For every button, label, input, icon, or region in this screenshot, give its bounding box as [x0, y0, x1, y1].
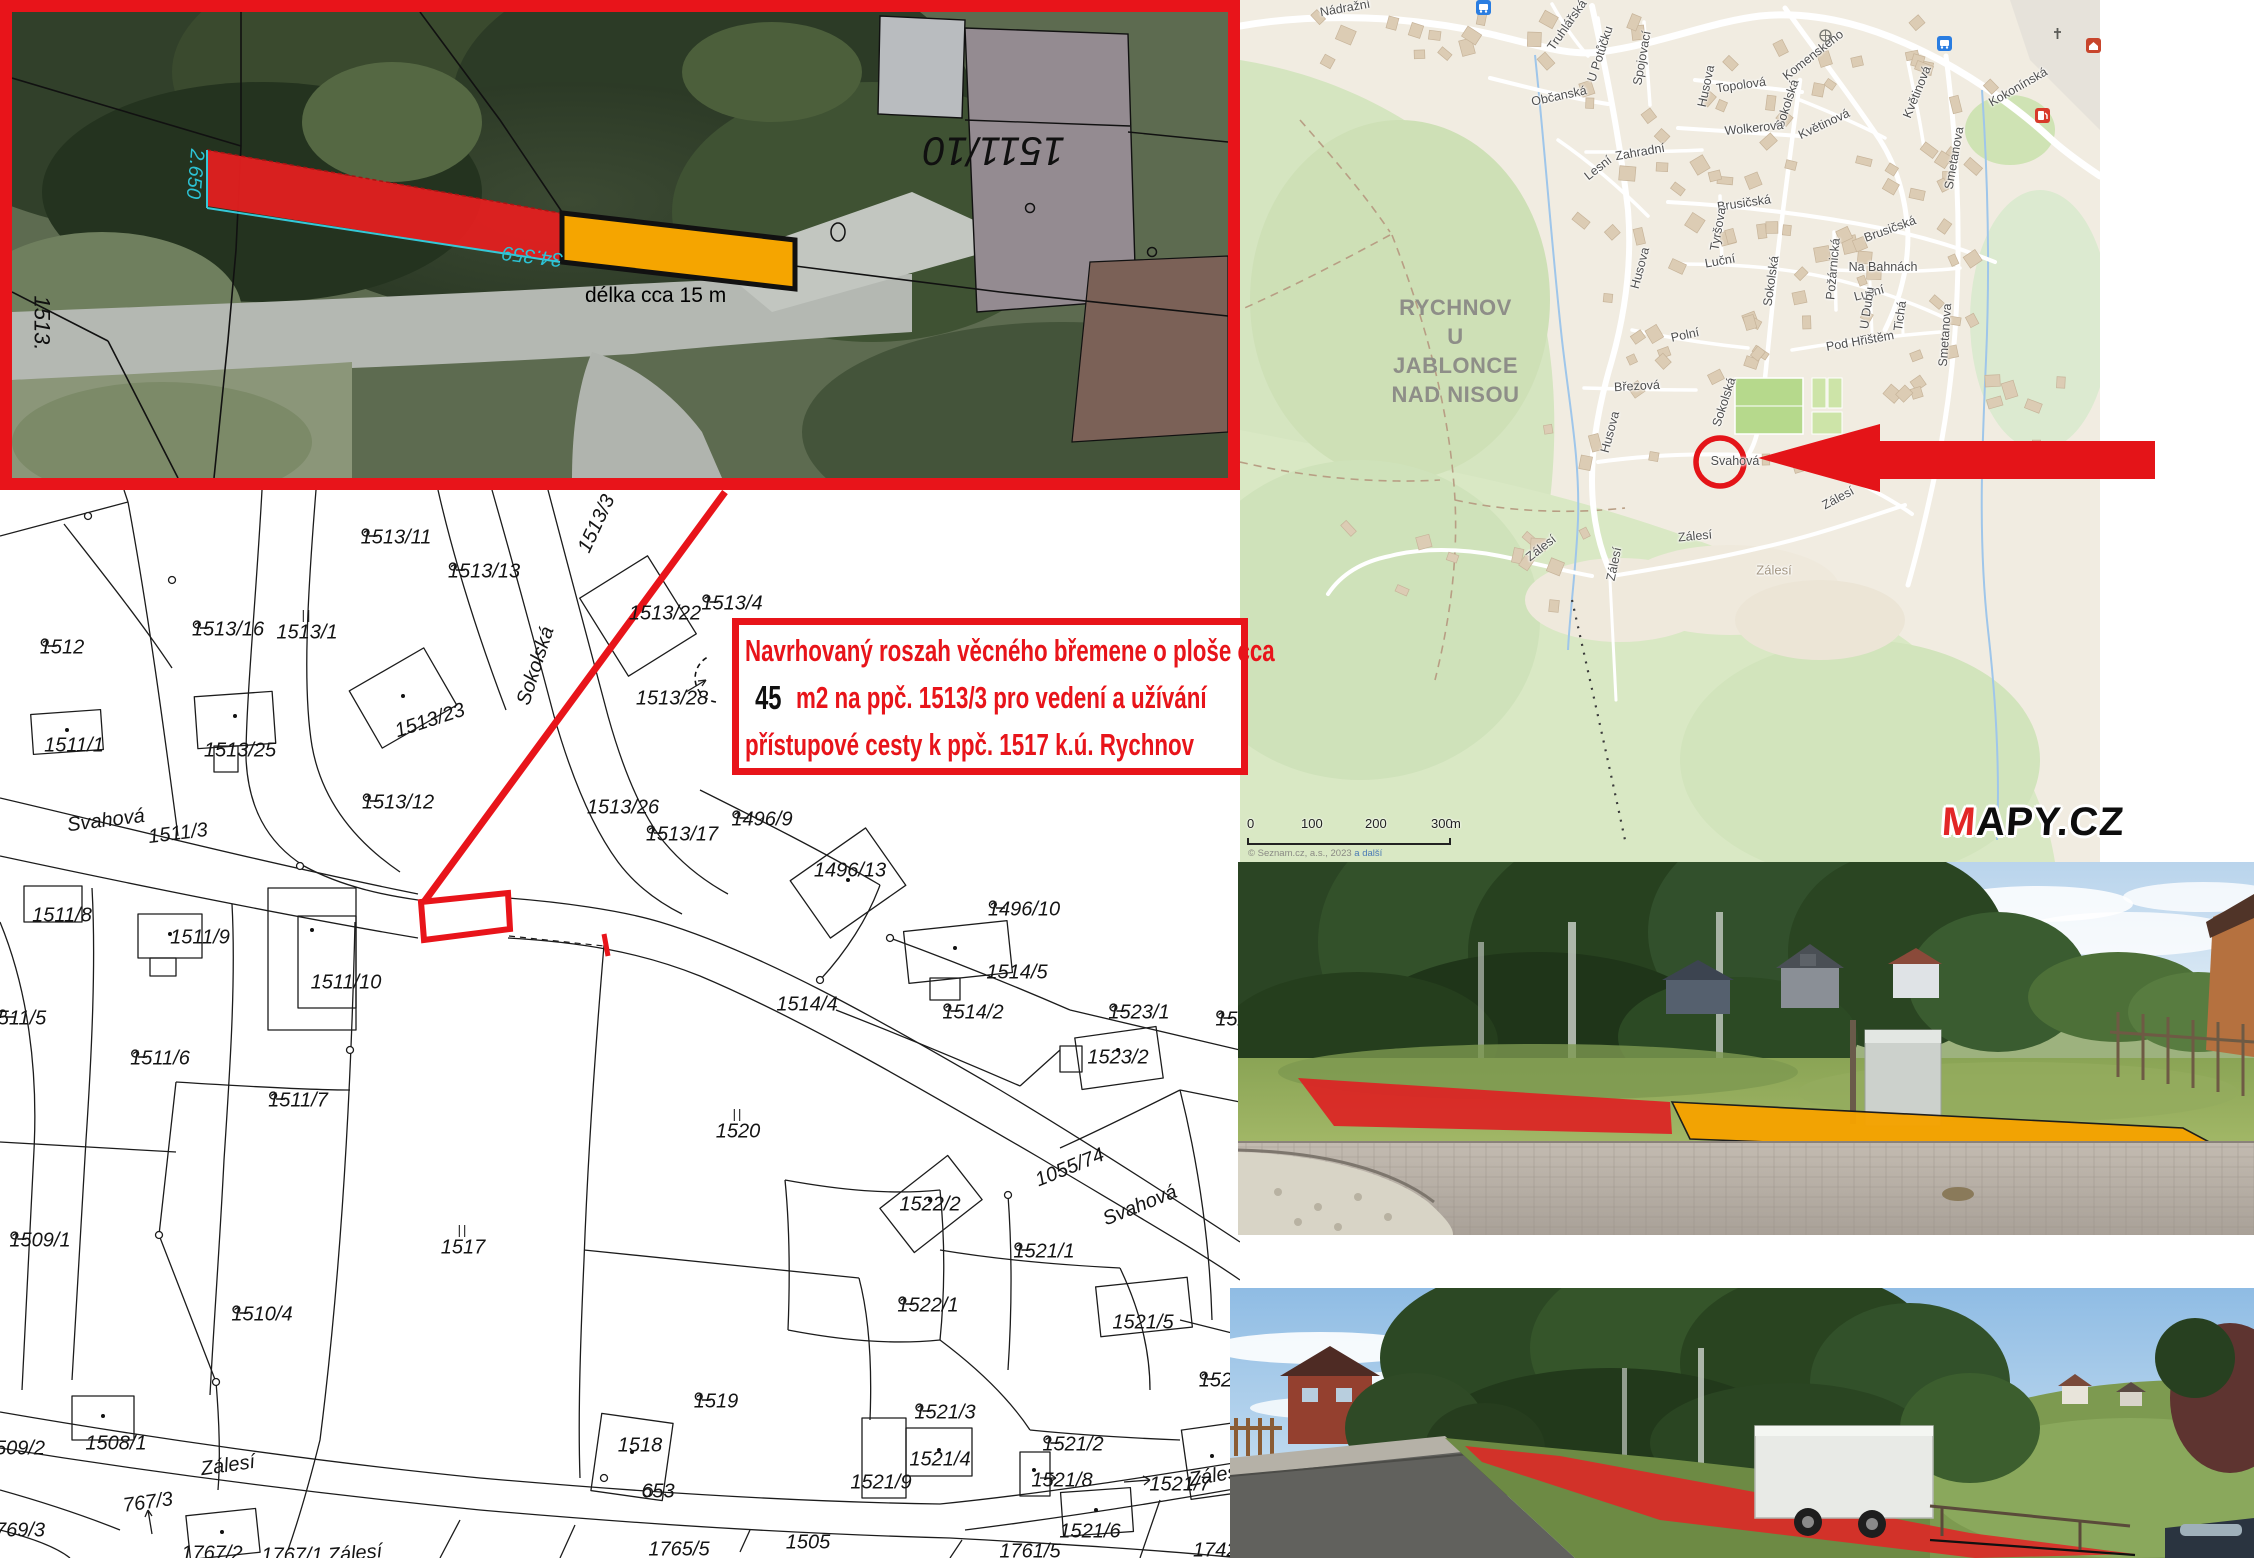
parcel-label: 1513/13 — [448, 562, 520, 583]
parcel-label: 1514/4 — [776, 995, 837, 1016]
mapy-cz-logo[interactable]: MAPY.CZ — [1940, 800, 2126, 845]
parcel-label: 509/2 — [0, 1439, 45, 1460]
parcel-label: 653 — [641, 1482, 674, 1503]
city-label: RYCHNOV U JABLONCE NAD NISOU — [1388, 293, 1523, 409]
parcel-label: 1508/1 — [85, 1434, 146, 1455]
parcel-label: 1767/2 — [181, 1544, 242, 1558]
parcel-label: 1522/2 — [899, 1195, 960, 1216]
church-icon — [2050, 26, 2065, 41]
parcel-label: 1511/7 — [268, 1091, 328, 1112]
annotation-line1: Navrhovaný roszah věcného břemene o ploš… — [745, 633, 1275, 669]
length-note: délka cca 15 m — [585, 284, 726, 308]
parcel-label: 1521/6 — [1059, 1522, 1120, 1543]
parcel-label: 1521/3 — [914, 1403, 975, 1424]
parcel-label: 152 — [1215, 1010, 1240, 1031]
parcel-label: 1514/5 — [986, 963, 1047, 984]
parcel-label: 1523/1 — [1108, 1003, 1169, 1024]
map-scale-bar: 0 100 200 300 m — [1245, 816, 1460, 852]
parcel-label: 1513/26 — [587, 798, 659, 819]
bus-stop-icon — [1476, 0, 1491, 15]
parcel-label: 1509/1 — [9, 1231, 70, 1252]
parcel-label: 1767/1 — [261, 1546, 322, 1558]
parcel-label: ||1517 — [441, 1224, 486, 1259]
photo-site-west — [1230, 1288, 2254, 1558]
parcel-label: 1521/9 — [850, 1473, 911, 1494]
parcel-label: 1513/11 — [361, 528, 432, 549]
overview-map[interactable]: RYCHNOV U JABLONCE NAD NISOU NádražníTru… — [1240, 0, 2254, 862]
parcel-label: 1521/2 — [1042, 1435, 1103, 1456]
parcel-label: 1521/5 — [1112, 1313, 1173, 1334]
parcel-label: 1513/28 — [636, 689, 708, 710]
parcel-label: 1513/17 — [646, 825, 718, 846]
street-label: Svahová — [1711, 454, 1760, 468]
parcel-label: 1511/10 — [311, 973, 382, 994]
parcel-label: 1514/2 — [942, 1003, 1003, 1024]
parcel-label: 1521/1 — [1013, 1242, 1074, 1263]
fuel-station-icon — [2035, 108, 2050, 123]
parcel-label: ||1520 — [716, 1108, 761, 1143]
parcel-label: 1513/22 — [629, 604, 701, 625]
aerial-edge-parcel-label: 1513. — [29, 295, 55, 350]
parcel-label: 1522/1 — [897, 1296, 958, 1317]
parcel-label: 1521/4 — [909, 1450, 970, 1471]
parcel-label: 1511/9 — [170, 928, 230, 949]
map-attribution: © Seznam.cz, a.s., 2023 a další — [1248, 848, 1382, 859]
aerial-photo-graphics — [12, 12, 1228, 478]
street-label: Na Bahnách — [1849, 260, 1918, 274]
annotation-line2: m2 na ppč. 1513/3 pro vedení a užívání — [796, 680, 1207, 716]
annotation-area-value: 45 — [745, 679, 782, 717]
attribution-text: © Seznam.cz, a.s., 2023 — [1248, 848, 1354, 859]
landmark-icon — [2086, 38, 2101, 53]
easement-outline — [421, 893, 510, 940]
parcel-label: 1513/25 — [204, 741, 276, 762]
parcel-label: 1761/5 — [999, 1542, 1060, 1558]
aerial-parcel-label: 1511/10 — [923, 128, 1065, 173]
parcel-label: 1511/1 — [44, 736, 104, 757]
parcel-label: ||1513/1 — [276, 609, 337, 644]
parcel-label: 1496/9 — [731, 810, 792, 831]
annotation-line3: přístupové cesty k ppč. 1517 k.ú. Rychno… — [745, 727, 1194, 763]
bus-stop-icon — [1937, 36, 1952, 51]
sports-hall-icon — [1818, 28, 1833, 43]
parcel-label: 1496/10 — [988, 900, 1060, 921]
parcel-label: 1511/8 — [32, 906, 92, 927]
street-label: Zálesí — [1677, 528, 1712, 545]
parcel-label: 1512 — [40, 638, 85, 659]
parcel-label: Zálesí — [327, 1541, 383, 1558]
parcel-label: 1505 — [786, 1533, 831, 1554]
parcel-label: 1513/4 — [701, 594, 762, 615]
parcel-label: 1521/8 — [1031, 1471, 1092, 1492]
parcel-label: 511/5 — [0, 1009, 46, 1030]
parcel-label: 1496/13 — [814, 861, 886, 882]
annotation-box: Navrhovaný roszah věcného břemene o ploš… — [732, 618, 1248, 775]
parcel-label: 1523/2 — [1087, 1048, 1148, 1069]
street-label: Březová — [1614, 378, 1661, 394]
photo-site-east — [1238, 862, 2254, 1235]
attribution-link[interactable]: a další — [1354, 848, 1382, 859]
parcel-label: 1765/5 — [648, 1540, 709, 1558]
parcel-label: 1510/4 — [231, 1305, 292, 1326]
parcel-label: 1513/12 — [362, 793, 434, 814]
parcel-label: 1513/16 — [192, 620, 264, 641]
street-label: Zálesí — [1756, 563, 1791, 578]
composite-screenshot: 1511/10 1513. 34.359 2.650 délka cca 15 … — [0, 0, 2254, 1558]
parcel-label: 769/3 — [0, 1521, 45, 1542]
parcel-label: 1511/6 — [130, 1049, 190, 1070]
measure-width-label: 2.650 — [181, 148, 208, 200]
parcel-label: 1519 — [694, 1392, 739, 1413]
aerial-photo-panel: 1511/10 1513. 34.359 2.650 délka cca 15 … — [0, 0, 1240, 490]
parcel-label: 1518 — [618, 1436, 663, 1457]
